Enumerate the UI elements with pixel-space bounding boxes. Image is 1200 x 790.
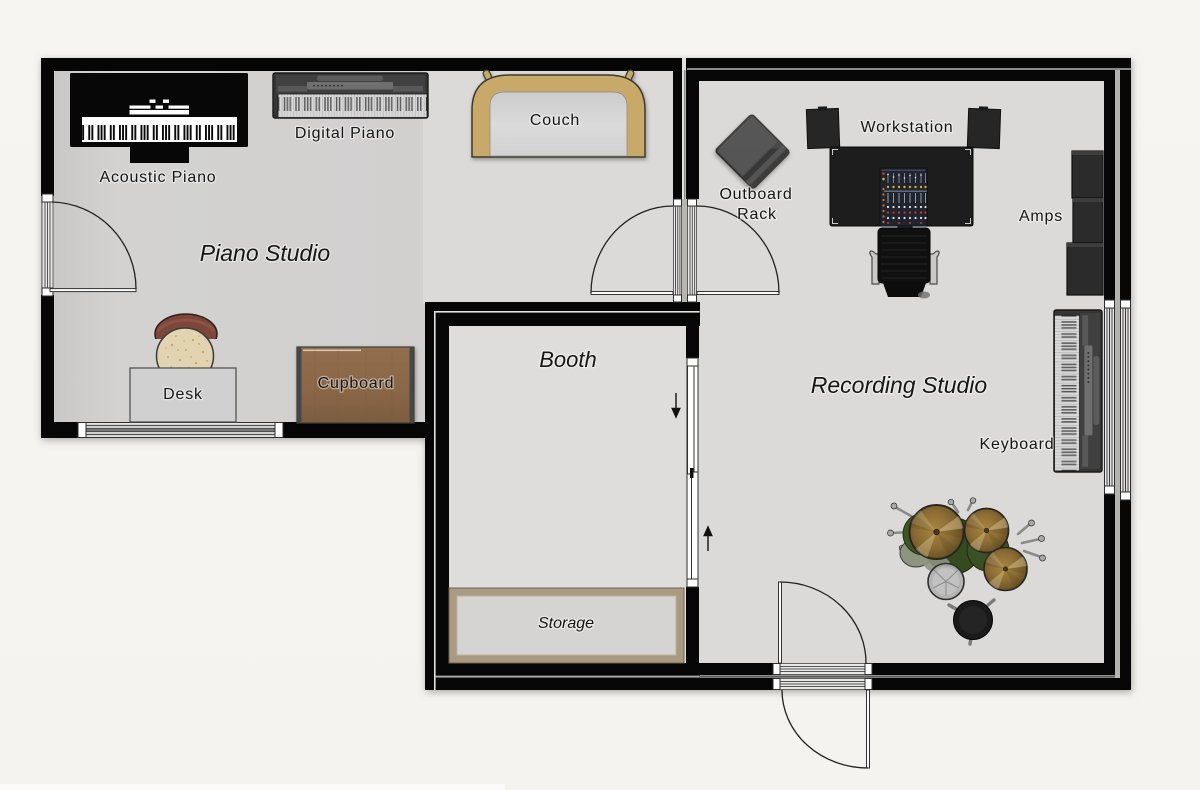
svg-text:Booth: Booth — [539, 347, 597, 372]
svg-text:Storage: Storage — [538, 615, 594, 632]
svg-text:Digital Piano: Digital Piano — [295, 125, 395, 142]
svg-text:Rack: Rack — [737, 206, 777, 223]
svg-text:Outboard: Outboard — [719, 186, 792, 203]
svg-text:Workstation: Workstation — [861, 119, 954, 136]
svg-text:Acoustic Piano: Acoustic Piano — [99, 169, 216, 186]
svg-text:Cupboard: Cupboard — [318, 375, 395, 392]
svg-text:Keyboard: Keyboard — [980, 436, 1055, 453]
svg-text:Piano Studio: Piano Studio — [200, 240, 331, 266]
svg-text:Desk: Desk — [163, 386, 203, 403]
svg-text:Recording Studio: Recording Studio — [811, 372, 988, 398]
svg-text:Couch: Couch — [530, 112, 580, 129]
svg-text:Amps: Amps — [1019, 208, 1063, 225]
